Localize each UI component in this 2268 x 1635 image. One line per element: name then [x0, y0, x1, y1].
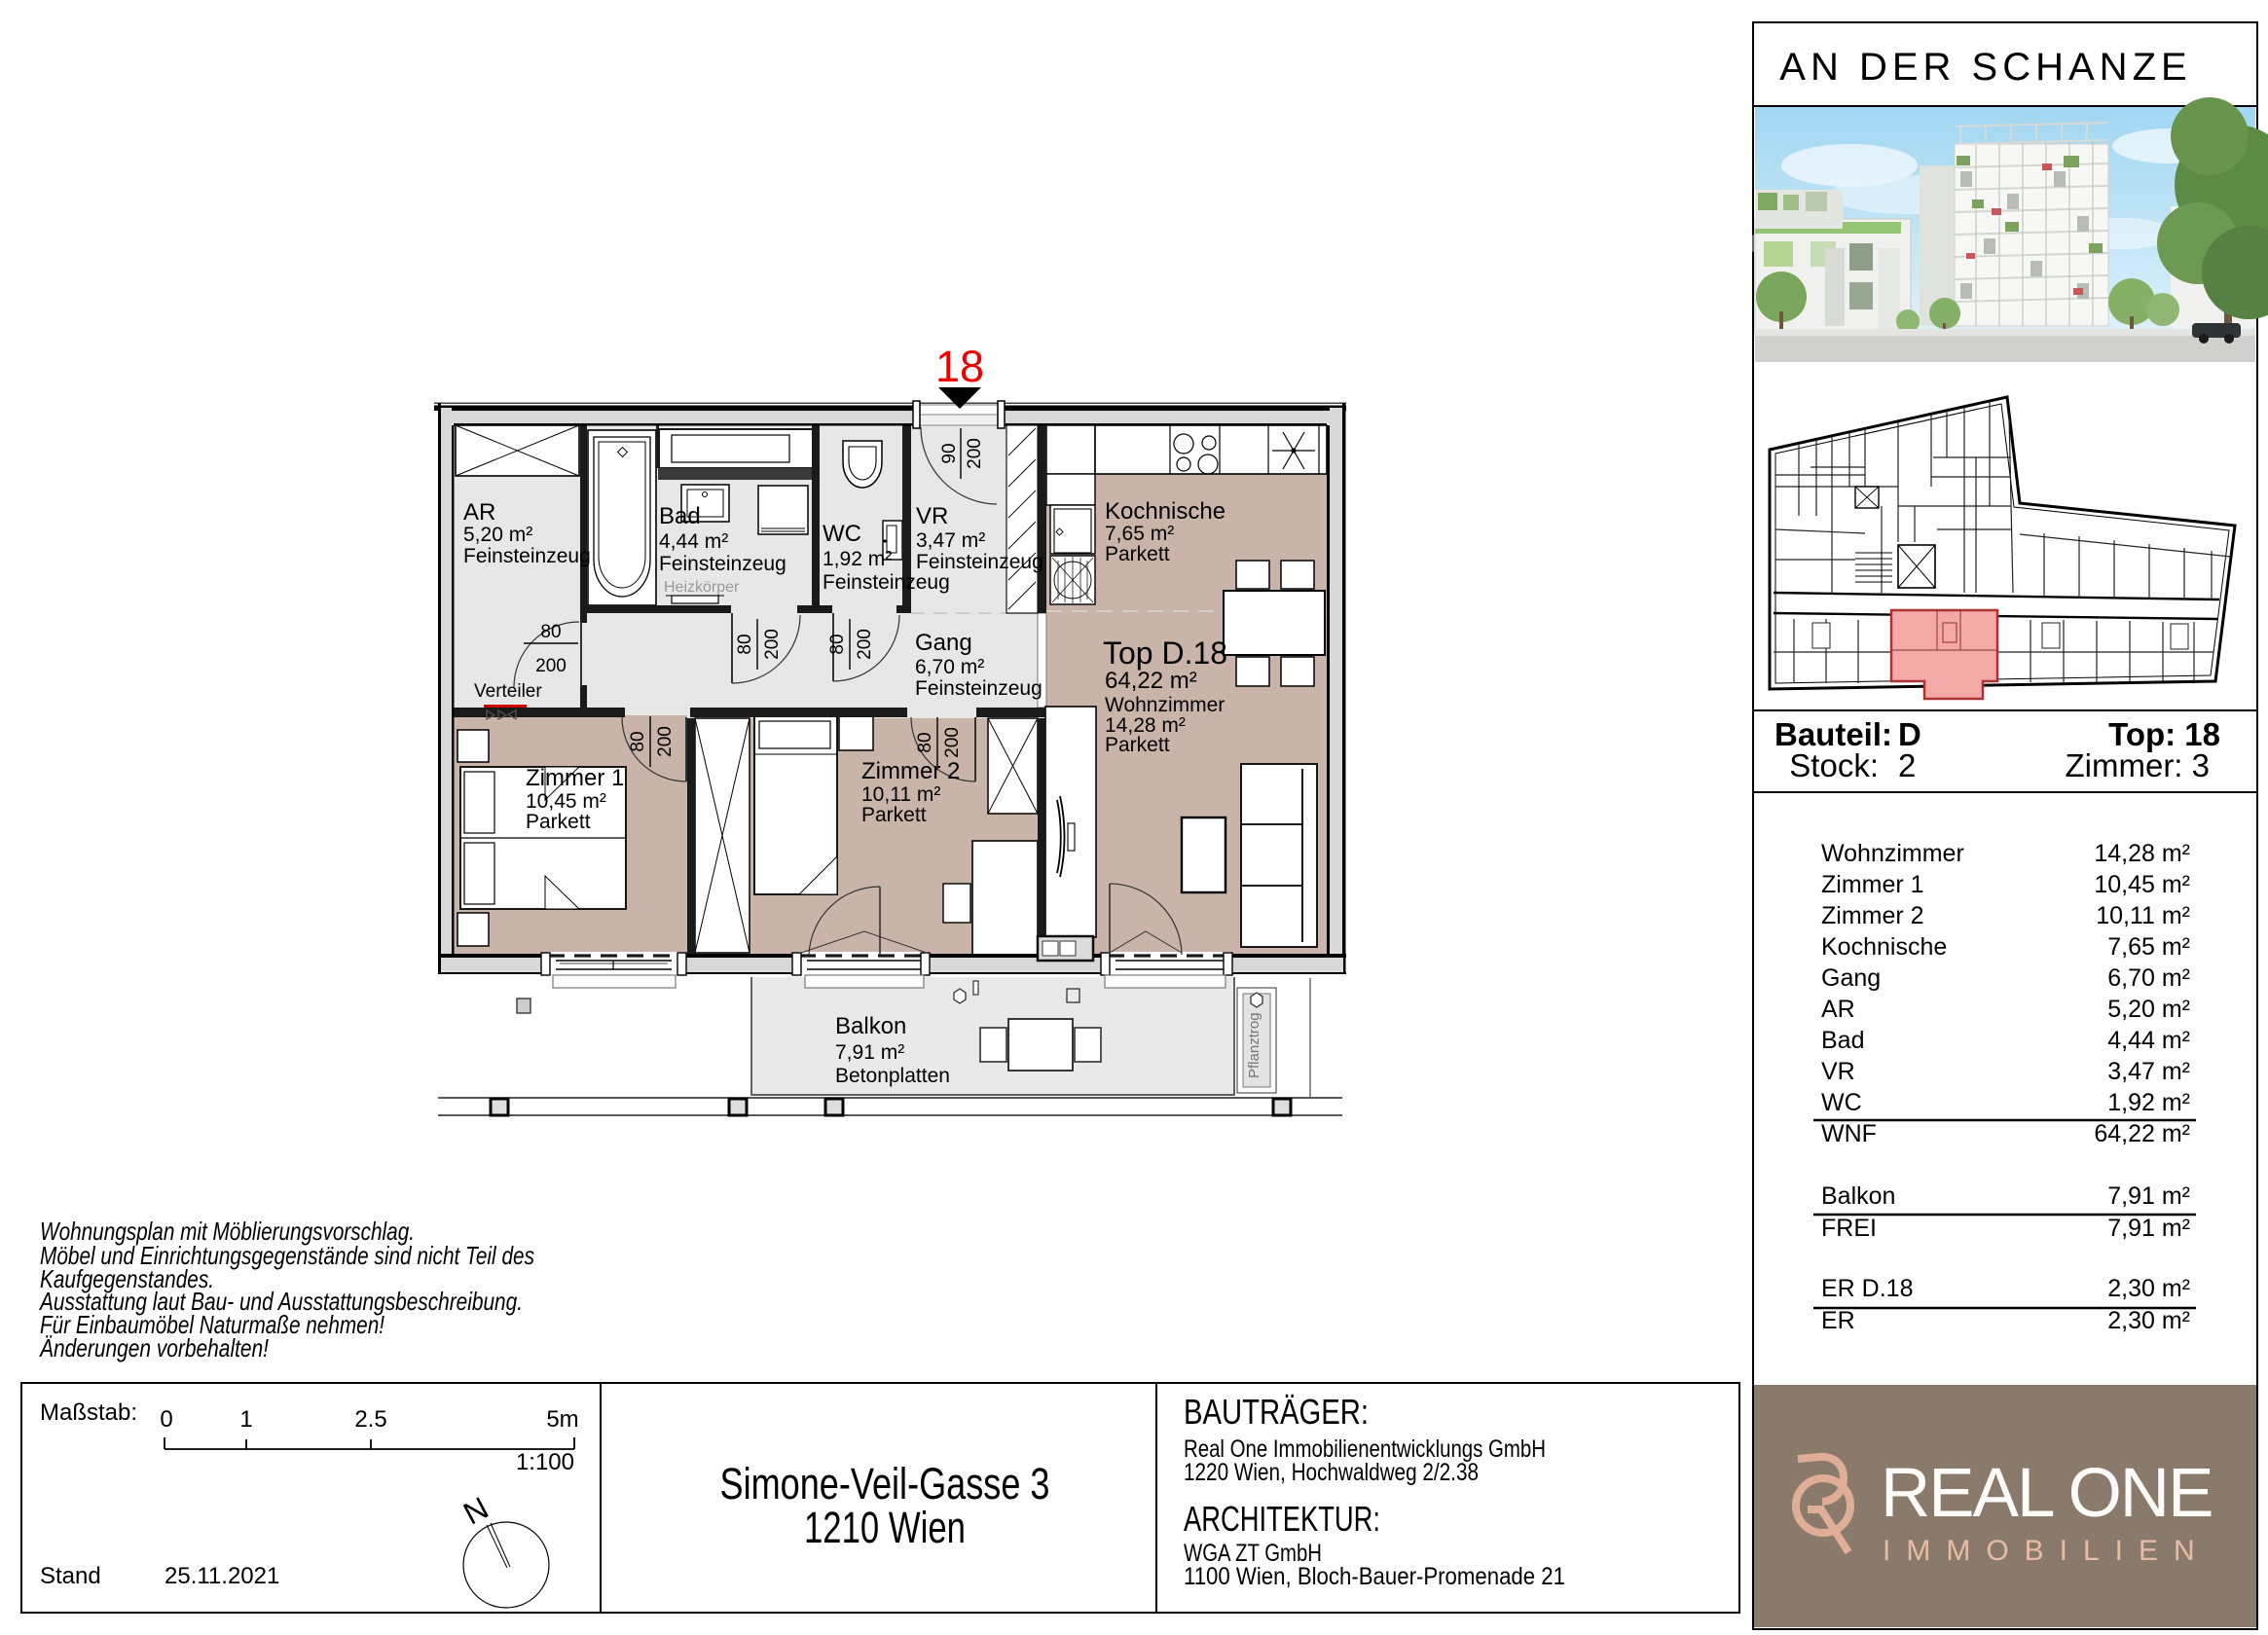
svg-text:Gang: Gang — [915, 630, 972, 656]
svg-text:200: 200 — [655, 726, 676, 757]
svg-text:10,11 m²: 10,11 m² — [2096, 902, 2190, 929]
svg-text:1: 1 — [239, 1406, 252, 1433]
svg-text:Top D.18: Top D.18 — [1103, 636, 1227, 671]
svg-text:3,47 m²: 3,47 m² — [2107, 1058, 2190, 1085]
svg-text:Änderungen vorbehalten!: Änderungen vorbehalten! — [38, 1333, 269, 1362]
svg-text:Kochnische: Kochnische — [1821, 933, 1947, 961]
svg-text:64,22 m²: 64,22 m² — [1105, 668, 1197, 694]
svg-text:ER D.18: ER D.18 — [1821, 1275, 1913, 1302]
svg-text:1220 Wien, Hochwaldweg 2/2.38: 1220 Wien, Hochwaldweg 2/2.38 — [1184, 1459, 1479, 1486]
svg-text:Zimmer 2: Zimmer 2 — [1821, 902, 1924, 929]
svg-text:25.11.2021: 25.11.2021 — [165, 1563, 279, 1589]
svg-text:Stand: Stand — [40, 1563, 101, 1589]
svg-text:5,20 m²: 5,20 m² — [463, 524, 532, 546]
svg-text:80: 80 — [915, 732, 935, 752]
svg-text:200: 200 — [762, 629, 783, 660]
svg-text:10,11 m²: 10,11 m² — [861, 783, 940, 806]
svg-text:Feinsteinzeug: Feinsteinzeug — [659, 553, 786, 575]
svg-text:Balkon: Balkon — [835, 1013, 906, 1039]
svg-text:VR: VR — [916, 503, 948, 529]
svg-text:Parkett: Parkett — [861, 804, 927, 826]
svg-text:1,92 m²: 1,92 m² — [823, 548, 892, 570]
svg-text:0: 0 — [160, 1406, 172, 1433]
svg-text:200: 200 — [965, 438, 985, 469]
svg-text:Balkon: Balkon — [1821, 1182, 1895, 1210]
svg-text:Heizkörper: Heizkörper — [664, 579, 740, 596]
svg-text:Parkett: Parkett — [1105, 543, 1170, 565]
svg-text:1210 Wien: 1210 Wien — [804, 1503, 966, 1552]
svg-text:ER: ER — [1821, 1307, 1855, 1334]
svg-text:Wohnzimmer: Wohnzimmer — [1105, 694, 1225, 716]
svg-text:AN DER SCHANZE: AN DER SCHANZE — [1779, 46, 2191, 89]
svg-text:Feinsteinzeug: Feinsteinzeug — [463, 545, 591, 567]
svg-text:Parkett: Parkett — [526, 811, 591, 833]
svg-text:90: 90 — [939, 443, 960, 463]
svg-text:3,47 m²: 3,47 m² — [916, 529, 985, 552]
svg-text:WNF: WNF — [1821, 1120, 1877, 1147]
svg-text:64,22 m²: 64,22 m² — [2094, 1120, 2190, 1147]
svg-text:18: 18 — [935, 342, 984, 391]
svg-text:Wohnzimmer: Wohnzimmer — [1821, 840, 1964, 867]
svg-text:Feinsteinzeug: Feinsteinzeug — [915, 677, 1043, 700]
svg-text:WC: WC — [823, 521, 861, 547]
svg-text:1:100: 1:100 — [516, 1449, 574, 1475]
svg-text:2,30 m²: 2,30 m² — [2107, 1275, 2190, 1302]
svg-text:7,91 m²: 7,91 m² — [2107, 1182, 2190, 1210]
svg-text:VR: VR — [1821, 1058, 1855, 1085]
svg-text:7,65 m²: 7,65 m² — [2107, 933, 2190, 961]
svg-text:80: 80 — [735, 634, 755, 654]
svg-text:10,45 m²: 10,45 m² — [526, 790, 606, 813]
svg-text:200: 200 — [855, 629, 875, 660]
svg-text:80: 80 — [540, 622, 561, 642]
svg-text:Zimmer 1: Zimmer 1 — [526, 765, 624, 791]
svg-text:1100 Wien, Bloch-Bauer-Promena: 1100 Wien, Bloch-Bauer-Promenade 21 — [1184, 1563, 1565, 1590]
svg-text:2: 2 — [1898, 747, 1916, 783]
svg-text:BAUTRÄGER:: BAUTRÄGER: — [1184, 1392, 1369, 1432]
svg-text:AR: AR — [463, 499, 495, 526]
svg-text:Pflanztrog: Pflanztrog — [1246, 1012, 1262, 1078]
svg-text:14,28 m²: 14,28 m² — [2094, 840, 2190, 867]
svg-text:6,70 m²: 6,70 m² — [915, 656, 984, 678]
svg-text:200: 200 — [942, 727, 963, 758]
svg-text:Zimmer 2: Zimmer 2 — [861, 758, 960, 784]
svg-text:Bad: Bad — [1821, 1027, 1864, 1054]
svg-text:5m: 5m — [546, 1406, 578, 1433]
svg-text:WC: WC — [1821, 1089, 1862, 1116]
svg-text:FREI: FREI — [1821, 1215, 1877, 1242]
svg-text:7,91 m²: 7,91 m² — [2107, 1215, 2190, 1242]
svg-text:Betonplatten: Betonplatten — [835, 1065, 950, 1087]
svg-text:Feinsteinzeug: Feinsteinzeug — [916, 551, 1043, 573]
svg-text:6,70 m²: 6,70 m² — [2107, 964, 2190, 992]
svg-text:Zimmer 1: Zimmer 1 — [1821, 871, 1924, 898]
svg-text:200: 200 — [535, 656, 567, 676]
svg-text:Maßstab:: Maßstab: — [40, 1399, 137, 1426]
svg-text:Gang: Gang — [1821, 964, 1881, 992]
svg-text:Parkett: Parkett — [1105, 734, 1170, 756]
svg-text:AR: AR — [1821, 996, 1855, 1023]
svg-text:Bad: Bad — [659, 503, 701, 529]
svg-text:IMMOBILIEN: IMMOBILIEN — [1883, 1535, 2211, 1567]
svg-text:80: 80 — [827, 634, 848, 654]
svg-text:80: 80 — [628, 731, 648, 751]
svg-text:Verteiler: Verteiler — [474, 681, 542, 702]
svg-text:Zimmer: 3: Zimmer: 3 — [2066, 747, 2211, 783]
svg-text:10,45 m²: 10,45 m² — [2094, 871, 2190, 898]
svg-text:ARCHITEKTUR:: ARCHITEKTUR: — [1184, 1499, 1380, 1539]
svg-text:7,91 m²: 7,91 m² — [835, 1041, 904, 1064]
svg-text:Kochnische: Kochnische — [1105, 498, 1225, 525]
svg-text:Simone-Veil-Gasse 3: Simone-Veil-Gasse 3 — [720, 1459, 1050, 1508]
svg-text:REAL ONE: REAL ONE — [1881, 1455, 2212, 1532]
svg-text:4,44 m²: 4,44 m² — [2107, 1027, 2190, 1054]
svg-text:2,30 m²: 2,30 m² — [2107, 1307, 2190, 1334]
svg-text:1,92 m²: 1,92 m² — [2107, 1089, 2190, 1116]
svg-text:2.5: 2.5 — [354, 1406, 386, 1433]
svg-text:7,65 m²: 7,65 m² — [1105, 523, 1174, 545]
svg-text:Stock:: Stock: — [1789, 747, 1879, 783]
svg-text:Feinsteinzeug: Feinsteinzeug — [823, 571, 950, 594]
svg-text:5,20 m²: 5,20 m² — [2107, 996, 2190, 1023]
svg-text:4,44 m²: 4,44 m² — [659, 530, 728, 553]
